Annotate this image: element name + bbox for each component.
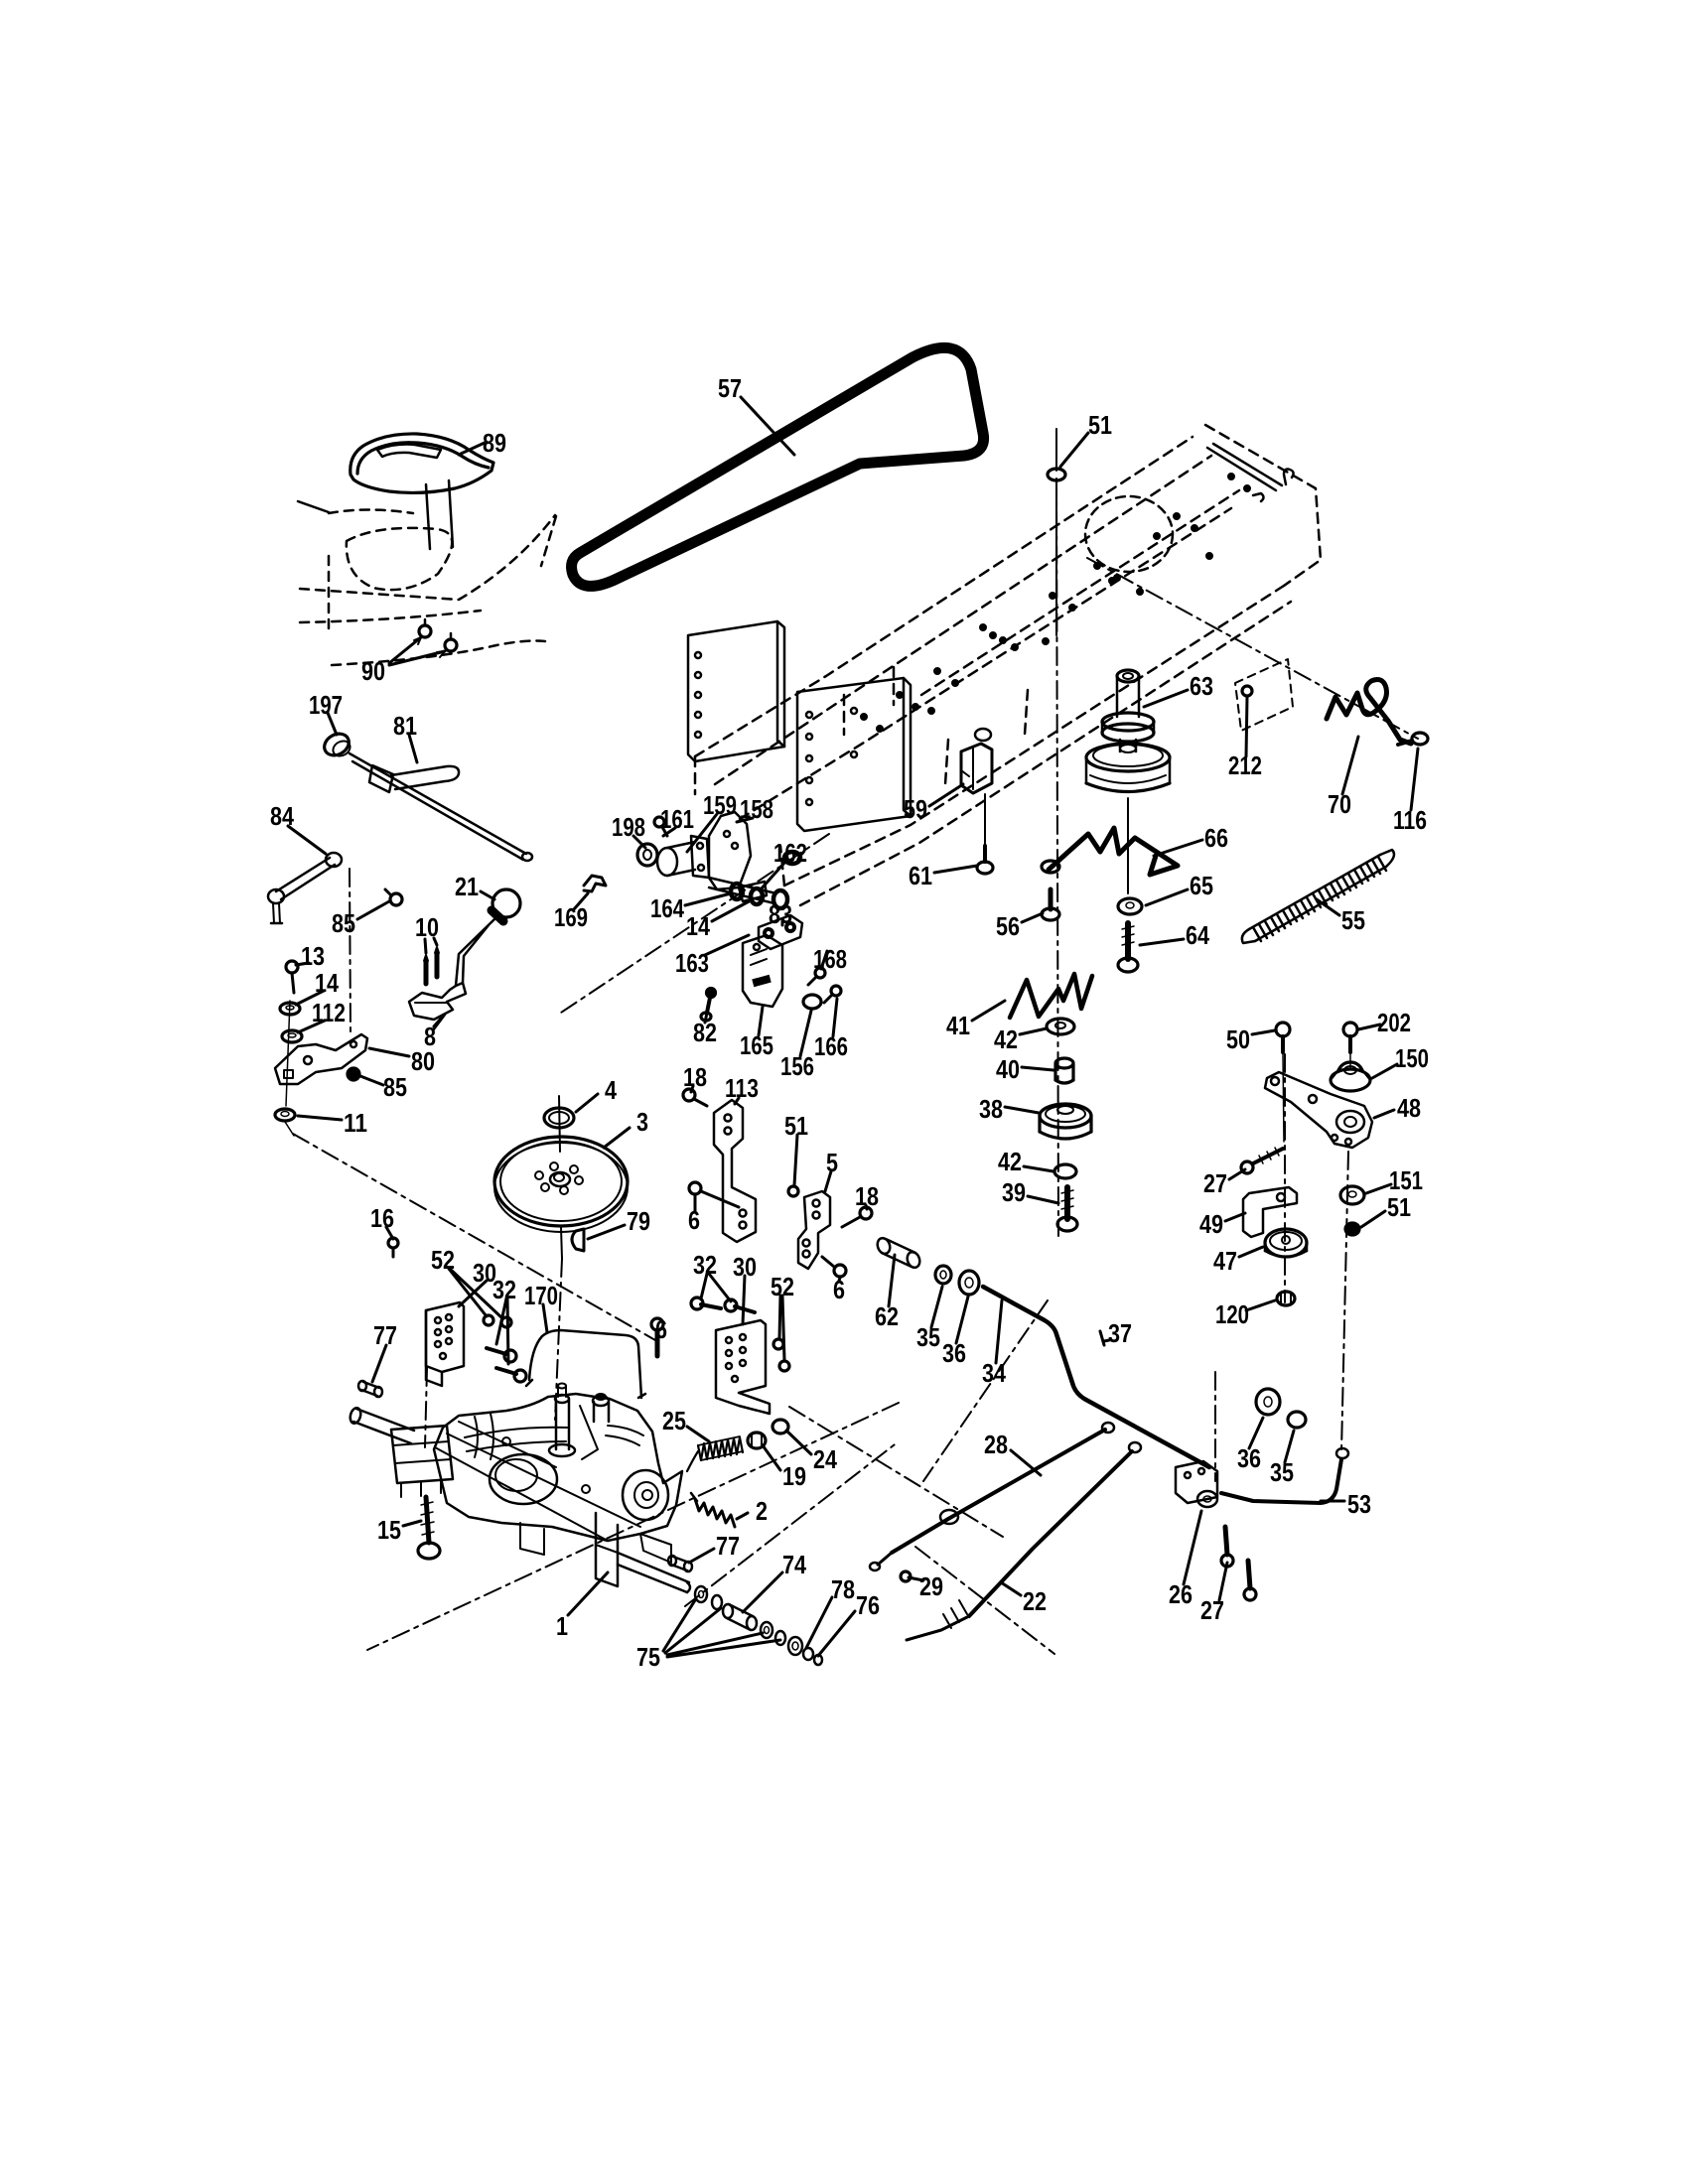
svg-text:78: 78 [831,1574,855,1604]
svg-text:159: 159 [703,790,737,820]
svg-text:169: 169 [554,902,588,932]
svg-text:162: 162 [773,838,807,868]
svg-text:29: 29 [919,1571,943,1601]
svg-text:34: 34 [982,1358,1006,1388]
svg-text:14: 14 [315,968,339,998]
svg-text:156: 156 [780,1051,814,1081]
svg-text:64: 64 [1186,920,1209,950]
svg-text:39: 39 [1002,1177,1026,1207]
svg-text:14: 14 [686,911,710,941]
svg-text:40: 40 [996,1054,1020,1084]
svg-text:65: 65 [1190,871,1213,900]
svg-text:51: 51 [784,1111,808,1141]
svg-text:166: 166 [814,1031,848,1061]
svg-text:27: 27 [1200,1595,1224,1625]
svg-text:161: 161 [660,804,694,834]
svg-text:47: 47 [1213,1246,1237,1276]
svg-text:163: 163 [675,948,709,978]
svg-text:85: 85 [383,1072,407,1102]
svg-text:113: 113 [725,1073,759,1103]
svg-text:27: 27 [1203,1168,1227,1198]
svg-text:36: 36 [1237,1443,1261,1473]
svg-text:70: 70 [1328,789,1351,819]
svg-text:56: 56 [996,911,1020,941]
svg-text:5: 5 [826,1148,838,1177]
svg-text:13: 13 [301,941,325,971]
svg-text:158: 158 [740,794,773,824]
svg-text:50: 50 [1226,1024,1250,1054]
svg-text:202: 202 [1377,1008,1411,1037]
svg-text:151: 151 [1389,1165,1423,1195]
svg-text:36: 36 [942,1338,966,1368]
svg-text:57: 57 [718,373,742,403]
svg-text:170: 170 [524,1281,558,1310]
svg-text:77: 77 [373,1320,397,1350]
svg-text:168: 168 [813,944,847,974]
svg-text:35: 35 [916,1322,940,1352]
svg-text:83: 83 [769,899,792,929]
svg-text:112: 112 [312,998,346,1027]
svg-text:42: 42 [998,1147,1022,1176]
svg-text:52: 52 [431,1245,455,1275]
svg-text:22: 22 [1023,1586,1047,1616]
svg-text:53: 53 [1347,1489,1371,1519]
svg-text:10: 10 [415,912,439,942]
svg-text:41: 41 [946,1011,970,1040]
svg-text:26: 26 [1169,1579,1193,1609]
svg-text:59: 59 [904,794,927,824]
svg-text:1: 1 [556,1611,568,1641]
svg-text:2: 2 [756,1496,768,1526]
svg-text:49: 49 [1199,1209,1223,1239]
svg-text:77: 77 [716,1531,740,1561]
svg-text:81: 81 [393,711,417,741]
svg-text:6: 6 [833,1275,845,1304]
svg-text:18: 18 [855,1181,879,1211]
svg-text:16: 16 [370,1203,394,1233]
svg-text:89: 89 [483,428,506,458]
svg-text:35: 35 [1270,1457,1294,1487]
svg-text:116: 116 [1393,805,1427,835]
svg-text:42: 42 [994,1024,1018,1054]
svg-text:90: 90 [361,656,385,686]
svg-text:11: 11 [344,1108,367,1138]
svg-text:52: 52 [771,1272,794,1301]
svg-text:74: 74 [782,1550,806,1579]
svg-text:37: 37 [1108,1318,1132,1348]
svg-text:18: 18 [683,1062,707,1092]
svg-text:85: 85 [332,908,355,938]
svg-text:51: 51 [1387,1192,1411,1222]
svg-text:165: 165 [740,1030,773,1060]
svg-text:212: 212 [1228,751,1262,780]
svg-text:32: 32 [492,1275,516,1304]
svg-text:25: 25 [662,1406,686,1435]
svg-text:19: 19 [782,1461,806,1491]
svg-text:24: 24 [813,1444,837,1474]
svg-text:80: 80 [411,1046,435,1076]
svg-text:32: 32 [693,1250,717,1280]
svg-text:63: 63 [1190,671,1213,701]
svg-text:76: 76 [856,1590,880,1620]
svg-text:48: 48 [1397,1093,1421,1123]
svg-text:82: 82 [693,1018,717,1047]
svg-text:55: 55 [1341,905,1365,935]
svg-text:84: 84 [270,801,294,831]
svg-text:4: 4 [605,1075,617,1105]
svg-text:3: 3 [636,1107,648,1137]
svg-text:15: 15 [377,1515,401,1545]
svg-text:6: 6 [688,1205,700,1235]
svg-text:38: 38 [979,1094,1003,1124]
svg-text:51: 51 [1088,410,1112,440]
svg-text:79: 79 [627,1206,650,1236]
svg-text:28: 28 [984,1430,1008,1459]
svg-text:6: 6 [655,1314,667,1344]
svg-text:21: 21 [455,872,479,901]
svg-text:150: 150 [1395,1043,1429,1073]
svg-text:61: 61 [909,861,932,890]
svg-text:62: 62 [875,1301,899,1331]
svg-text:198: 198 [612,812,645,842]
svg-text:66: 66 [1204,823,1228,853]
svg-text:197: 197 [309,690,343,720]
svg-text:75: 75 [636,1642,660,1672]
svg-text:30: 30 [733,1252,757,1282]
svg-text:164: 164 [650,893,684,923]
svg-text:120: 120 [1215,1299,1249,1329]
